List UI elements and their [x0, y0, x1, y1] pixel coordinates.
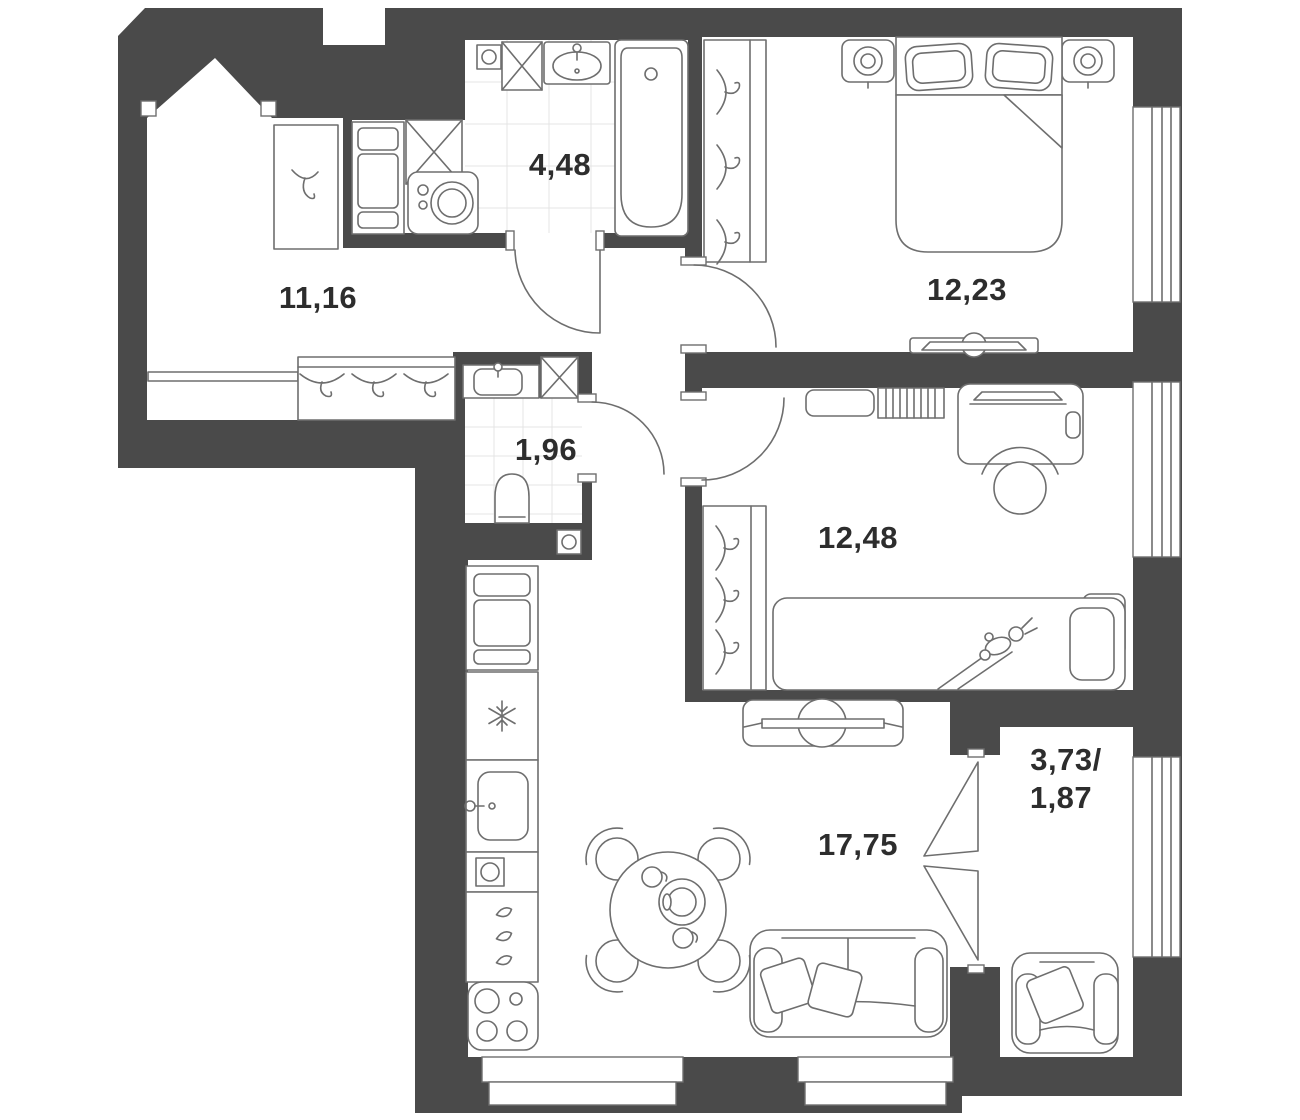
toilet-icon [495, 474, 529, 523]
hall-shelf [148, 372, 298, 381]
nightstand-left [842, 40, 894, 88]
bedroom-wardrobe [704, 40, 766, 264]
bathtub-icon [615, 40, 688, 236]
kitchen-tall-cabinet [466, 566, 538, 670]
fridge-icon [466, 672, 538, 760]
living-window [798, 1057, 953, 1105]
bathroom-cabinet-icon [352, 122, 404, 234]
balcony-area-label-line2: 1,87 [1030, 780, 1092, 815]
kids-room-door-opening [683, 396, 704, 482]
kitchen-sink-icon [465, 760, 538, 852]
stove-icon [468, 982, 538, 1050]
cup-icon [642, 867, 662, 887]
washing-machine-icon [408, 172, 478, 234]
bathroom-door-opening [512, 231, 598, 250]
kids-room-window [1133, 382, 1180, 557]
kids-wardrobe [703, 506, 766, 690]
kitchen-living-area-label: 17,75 [818, 827, 898, 862]
balcony-area-label-line1: 3,73/ [1030, 742, 1101, 777]
bathroom-sink-icon [544, 42, 610, 84]
bathroom-area-label: 4,48 [529, 147, 591, 182]
bay-window-cap-left [141, 101, 156, 116]
bedroom-area-label: 12,23 [927, 272, 1007, 307]
bay-window-cap-right [261, 101, 276, 116]
wall-notch [323, 0, 385, 45]
floor-plan-canvas: 4,48 11,16 1,96 12,23 12,48 17,75 3,73/ … [0, 0, 1300, 1120]
hall-wardrobe [298, 357, 455, 420]
wc-vent-box-icon [557, 530, 581, 554]
wc-sink-icon [463, 363, 539, 398]
desk [958, 384, 1083, 464]
bedroom-window [1133, 107, 1180, 302]
bedroom-door-opening [683, 263, 704, 347]
cup-icon [673, 928, 693, 948]
wc-area-label: 1,96 [515, 432, 577, 467]
sofa-icon [750, 930, 947, 1037]
kitchen-drawers [466, 892, 538, 982]
monitor-icon [974, 392, 1062, 400]
floor-plan: 4,48 11,16 1,96 12,23 12,48 17,75 3,73/ … [0, 0, 1300, 1120]
kids-bed-icon [773, 598, 1125, 690]
hallway-area-label: 11,16 [279, 280, 357, 315]
balcony [1012, 953, 1118, 1053]
dining-set [586, 828, 750, 992]
double-bed-icon [896, 37, 1062, 252]
kids-room-area-label: 12,48 [818, 520, 898, 555]
kids-shelf [806, 390, 874, 416]
kitchen-window [482, 1057, 683, 1105]
wc-door-opening [580, 400, 594, 476]
armchair-icon [1012, 953, 1118, 1053]
hall-mirror-cabinet [274, 125, 338, 249]
wc-vent-icon [541, 357, 578, 398]
nightstand-right [1062, 40, 1114, 88]
radiator-grille-icon [878, 388, 944, 418]
living-tv-stand [743, 699, 903, 747]
balcony-window [1133, 757, 1180, 957]
kitchen-unit [466, 852, 538, 892]
